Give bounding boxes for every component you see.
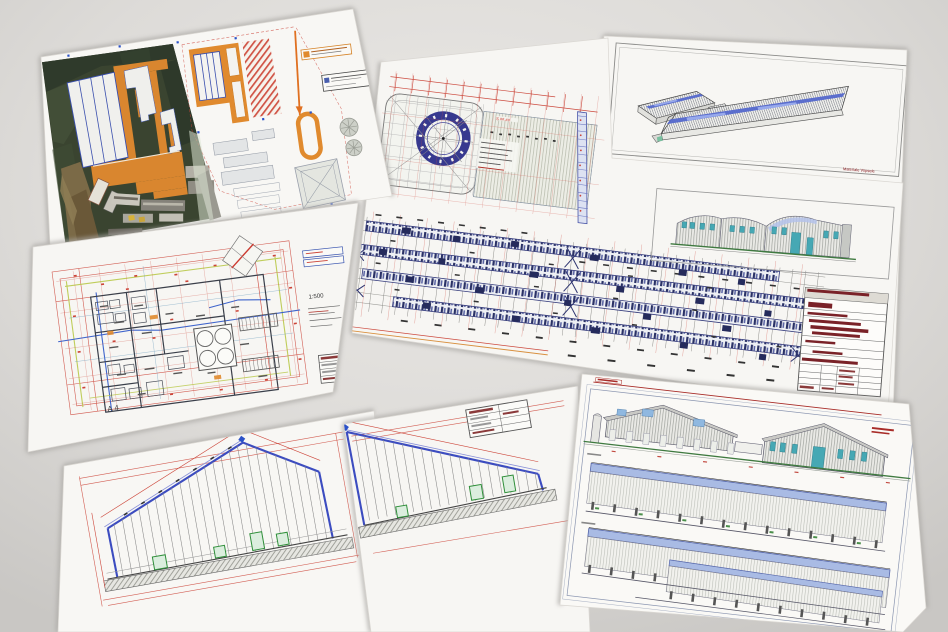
svg-text:A 4: A 4 xyxy=(107,403,120,414)
